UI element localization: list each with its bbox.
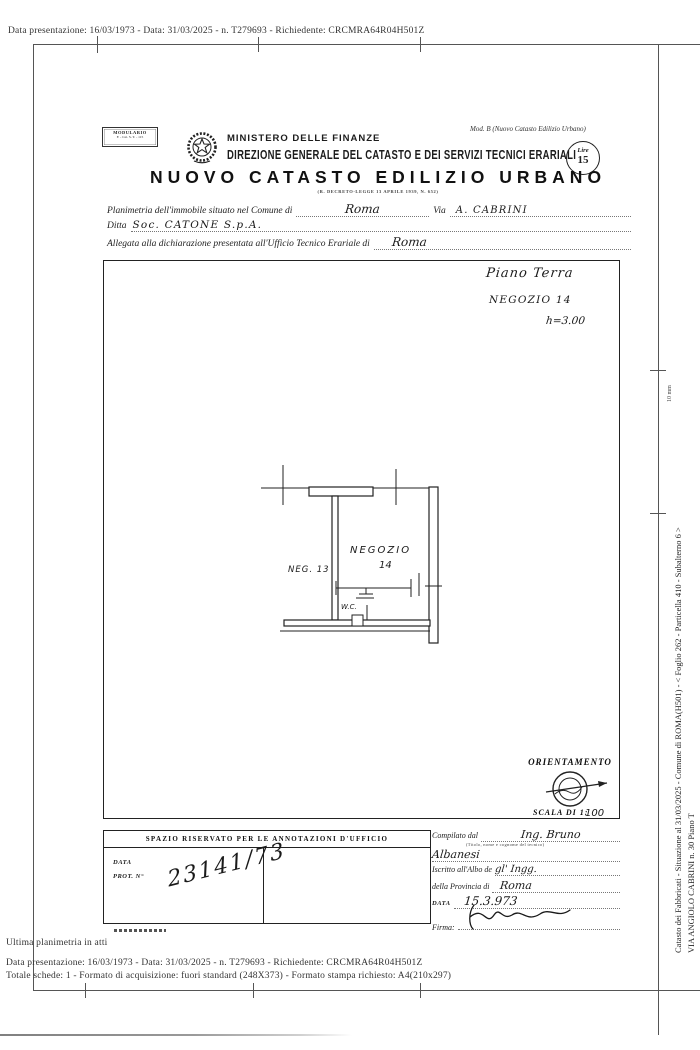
frame-tick — [650, 370, 666, 371]
provincia-label: della Provincia di — [432, 882, 492, 891]
orientation-compass — [546, 772, 607, 806]
frame-tick — [253, 983, 254, 998]
wall-top-flange — [309, 487, 373, 496]
tech-row-provincia: della Provincia di Roma — [432, 879, 620, 893]
comune-label: Planimetria dell'immobile situato nel Co… — [107, 206, 296, 216]
surname-value: Albanesi — [431, 848, 480, 861]
frame-tick — [85, 983, 86, 998]
compilato-value: Ing. Bruno — [520, 828, 581, 841]
footer-line2: Totale schede: 1 - Formato di acquisizio… — [6, 971, 451, 981]
compilato-field: Ing. Bruno — [481, 828, 620, 842]
frame-left-line — [33, 44, 34, 990]
ditta-field: Soc. CATONE S.p.A. — [131, 219, 631, 232]
albo-label: Iscritto all'Albo de — [432, 865, 495, 874]
allegata-value: Roma — [373, 235, 427, 249]
frame-right-line — [658, 44, 659, 1035]
form-row-ditta: Ditta Soc. CATONE S.p.A. — [107, 219, 631, 232]
allegata-label: Allegata alla dichiarazione presentata a… — [107, 239, 374, 249]
frame-tick — [420, 37, 421, 52]
ditta-label: Ditta — [107, 221, 131, 231]
surname-field: Albanesi — [432, 848, 620, 862]
signature-scribble — [464, 901, 584, 931]
comune-field: Roma — [296, 202, 429, 217]
compilato-hint: (Titolo, nome e cognome del tecnico) — [466, 842, 544, 847]
lire-stamp-value: 15 — [567, 155, 599, 166]
compilato-label: Compilato dal — [432, 831, 481, 840]
scale-value: 100 — [585, 808, 604, 817]
mod-b-label: Mod. B (Nuovo Catasto Edilizio Urbano) — [470, 125, 650, 133]
tech-date-label: DATA — [432, 900, 454, 907]
annotations-prot-label: PROT. N° — [113, 873, 144, 880]
plan-label-negozio-num: 14 — [379, 560, 392, 571]
tech-row-albo: Iscritto all'Albo de gl' Ingg. — [432, 864, 620, 876]
frame-bottom-line — [33, 990, 700, 991]
modulario-box: MODULARIO F. - Cat. S. T. - 115 — [102, 127, 158, 147]
wall-partition-stem — [332, 496, 338, 620]
ultima-note: Ultima planimetria in atti — [6, 938, 108, 948]
plan-label-neg13: NEG. 13 — [288, 565, 330, 575]
ditta-value: Soc. CATONE S.p.A. — [131, 219, 263, 231]
document-subtitle: (R. DECRETO-LEGGE 13 APRILE 1939, N. 652… — [103, 189, 653, 194]
footer-line1: Data presentazione: 16/03/1973 - Data: 3… — [6, 958, 423, 968]
plan-label-negozio: NEGOZIO — [350, 545, 411, 556]
direction-title: DIREZIONE GENERALE DEL CATASTO E DEI SER… — [227, 148, 576, 162]
annotations-data-label: DATA — [113, 859, 132, 866]
via-value: A. CABRINI — [450, 205, 528, 216]
ministry-title: MINISTERO DELLE FINANZE — [227, 133, 380, 144]
plan-label-wc: W.C. — [341, 603, 357, 611]
comune-value: Roma — [345, 202, 381, 216]
plan-dimension-marks — [336, 573, 442, 597]
albo-field: gl' Ingg. — [495, 864, 620, 876]
scan-header-line: Data presentazione: 16/03/1973 - Data: 3… — [8, 26, 425, 36]
margin-caption-line2: VIA ANGIOLO CABRINI n. 30 Piano T — [686, 813, 696, 953]
form-row-comune: Planimetria dell'immobile situato nel Co… — [107, 202, 631, 217]
ruler-label: 10 mm — [667, 385, 673, 402]
allegata-field: Roma — [374, 235, 631, 250]
tech-row-compilato: Compilato dal Ing. Bruno — [432, 828, 620, 842]
orientation-label: ORIENTAMENTO — [528, 757, 612, 767]
frame-tick — [258, 37, 259, 52]
provincia-value: Roma — [492, 879, 533, 892]
firma-field — [458, 911, 620, 930]
document-title: NUOVO CATASTO EDILIZIO URBANO — [103, 167, 653, 188]
via-field: A. CABRINI — [450, 205, 631, 217]
scan-edge-artifact — [0, 1034, 352, 1036]
frame-top-line — [33, 44, 700, 45]
scale-label: SCALA DI 1: — [533, 808, 588, 817]
margin-caption-line1: Catasto dei Fabbricati - Situazione al 3… — [673, 527, 683, 953]
floor-plan: NEGOZIO 14 NEG. 13 W.C. ORIENTAMENTO SCA… — [103, 260, 618, 817]
via-label: Via — [429, 206, 450, 216]
provincia-field: Roma — [492, 879, 620, 893]
frame-tick — [97, 36, 98, 53]
form-row-allegata: Allegata alla dichiarazione presentata a… — [107, 235, 631, 250]
annotations-box: SPAZIO RISERVATO PER LE ANNOTAZIONI D'UF… — [103, 830, 431, 924]
tech-row-surname: Albanesi — [432, 848, 620, 862]
frame-tick — [420, 983, 421, 998]
tech-row-firma: Firma: — [432, 911, 620, 932]
albo-value: gl' Ingg. — [494, 864, 537, 875]
printer-imprint — [114, 929, 166, 932]
firma-label: Firma: — [432, 923, 458, 932]
frame-tick — [650, 513, 666, 514]
modulario-line2: F. - Cat. S. T. - 115 — [103, 135, 157, 139]
state-emblem-icon — [186, 128, 218, 166]
